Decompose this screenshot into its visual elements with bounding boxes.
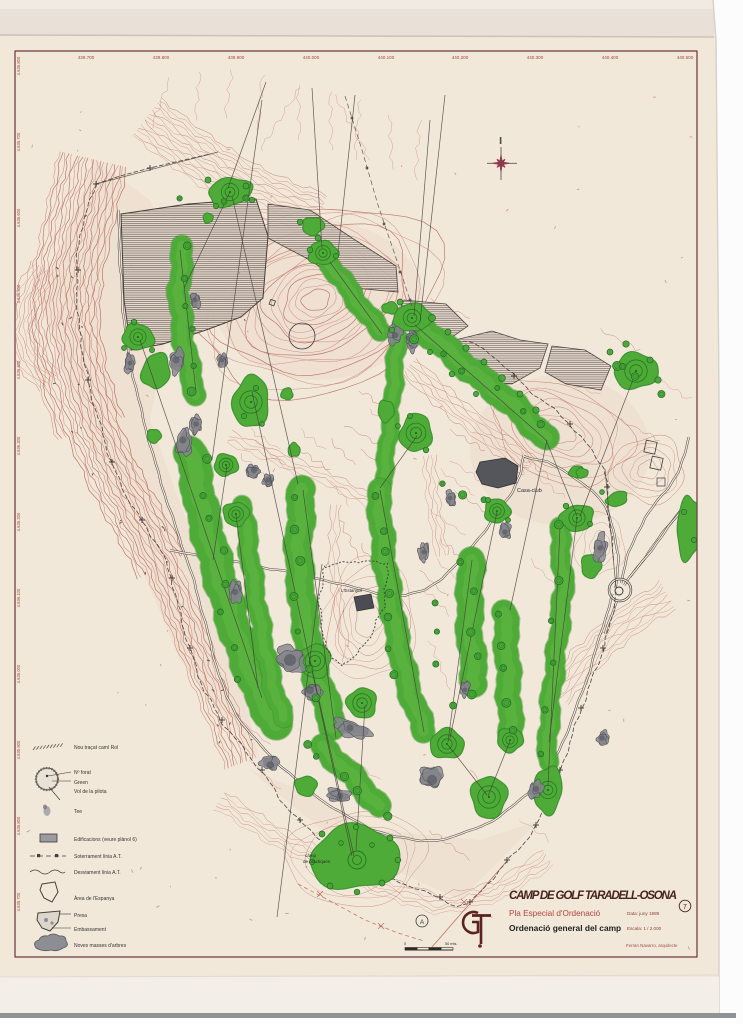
svg-text:Data: juny 1989: Data: juny 1989 — [627, 911, 660, 916]
svg-text:440.400: 440.400 — [602, 55, 619, 60]
svg-text:4.635.900: 4.635.900 — [16, 740, 21, 759]
svg-text:4.635.800: 4.635.800 — [16, 816, 21, 835]
svg-text:0: 0 — [404, 942, 406, 946]
svg-text:4.636.200: 4.636.200 — [16, 512, 21, 531]
svg-text:440.200: 440.200 — [452, 55, 469, 60]
svg-text:Edificacions (veure plànol 6): Edificacions (veure plànol 6) — [74, 837, 137, 843]
svg-text:Noves masses d'arbres: Noves masses d'arbres — [74, 943, 127, 949]
svg-text:Ferran Navarro, arquitecte: Ferran Navarro, arquitecte — [626, 943, 678, 948]
svg-text:Desviament línia A.T.: Desviament línia A.T. — [74, 870, 121, 876]
svg-text:Vol de la pilota: Vol de la pilota — [74, 789, 107, 795]
svg-text:Escala: 1 / 2.000: Escala: 1 / 2.000 — [627, 926, 662, 931]
svg-text:de pràctiques: de pràctiques — [303, 859, 331, 864]
svg-text:4.636.100: 4.636.100 — [16, 588, 21, 607]
svg-text:7: 7 — [683, 904, 687, 911]
svg-text:Nou traçat camí Rol: Nou traçat camí Rol — [74, 745, 118, 751]
svg-text:A: A — [420, 919, 425, 926]
svg-text:4.636.000: 4.636.000 — [16, 664, 21, 683]
svg-text:Tee: Tee — [74, 809, 82, 815]
svg-text:Ordenació general del camp: Ordenació general del camp — [509, 923, 621, 933]
svg-text:440.100: 440.100 — [378, 55, 395, 60]
svg-text:Àrea de l'Espanya: Àrea de l'Espanya — [74, 895, 115, 902]
svg-text:439.700: 439.700 — [78, 55, 95, 60]
svg-text:4.636.700: 4.636.700 — [16, 132, 21, 151]
svg-text:440.000: 440.000 — [303, 55, 320, 60]
svg-text:CAMP DE GOLF TARADELL-OSONA: CAMP DE GOLF TARADELL-OSONA — [509, 890, 677, 902]
svg-text:4.635.700: 4.635.700 — [16, 892, 21, 911]
svg-text:Pla Especial d'Ordenació: Pla Especial d'Ordenació — [509, 909, 601, 918]
svg-text:L'Estanyol: L'Estanyol — [341, 588, 362, 593]
svg-text:439.800: 439.800 — [153, 55, 170, 60]
svg-text:4.636.300: 4.636.300 — [16, 436, 21, 455]
svg-text:Casa-club: Casa-club — [517, 488, 542, 494]
svg-text:4.636.800: 4.636.800 — [16, 56, 21, 75]
svg-text:440.500: 440.500 — [677, 55, 694, 60]
svg-text:4.636.400: 4.636.400 — [16, 360, 21, 379]
svg-text:Soterrament línia A.T.: Soterrament línia A.T. — [74, 854, 122, 860]
svg-text:Nº forat: Nº forat — [74, 770, 91, 776]
svg-text:440.300: 440.300 — [527, 55, 544, 60]
svg-text:4.636.600: 4.636.600 — [16, 208, 21, 227]
svg-text:camp: camp — [305, 853, 317, 858]
svg-text:439.900: 439.900 — [228, 55, 245, 60]
svg-text:Green: Green — [74, 780, 88, 786]
svg-text:50 mts.: 50 mts. — [445, 942, 457, 946]
svg-text:Embassament: Embassament — [74, 927, 107, 933]
svg-text:Presa: Presa — [74, 913, 87, 919]
